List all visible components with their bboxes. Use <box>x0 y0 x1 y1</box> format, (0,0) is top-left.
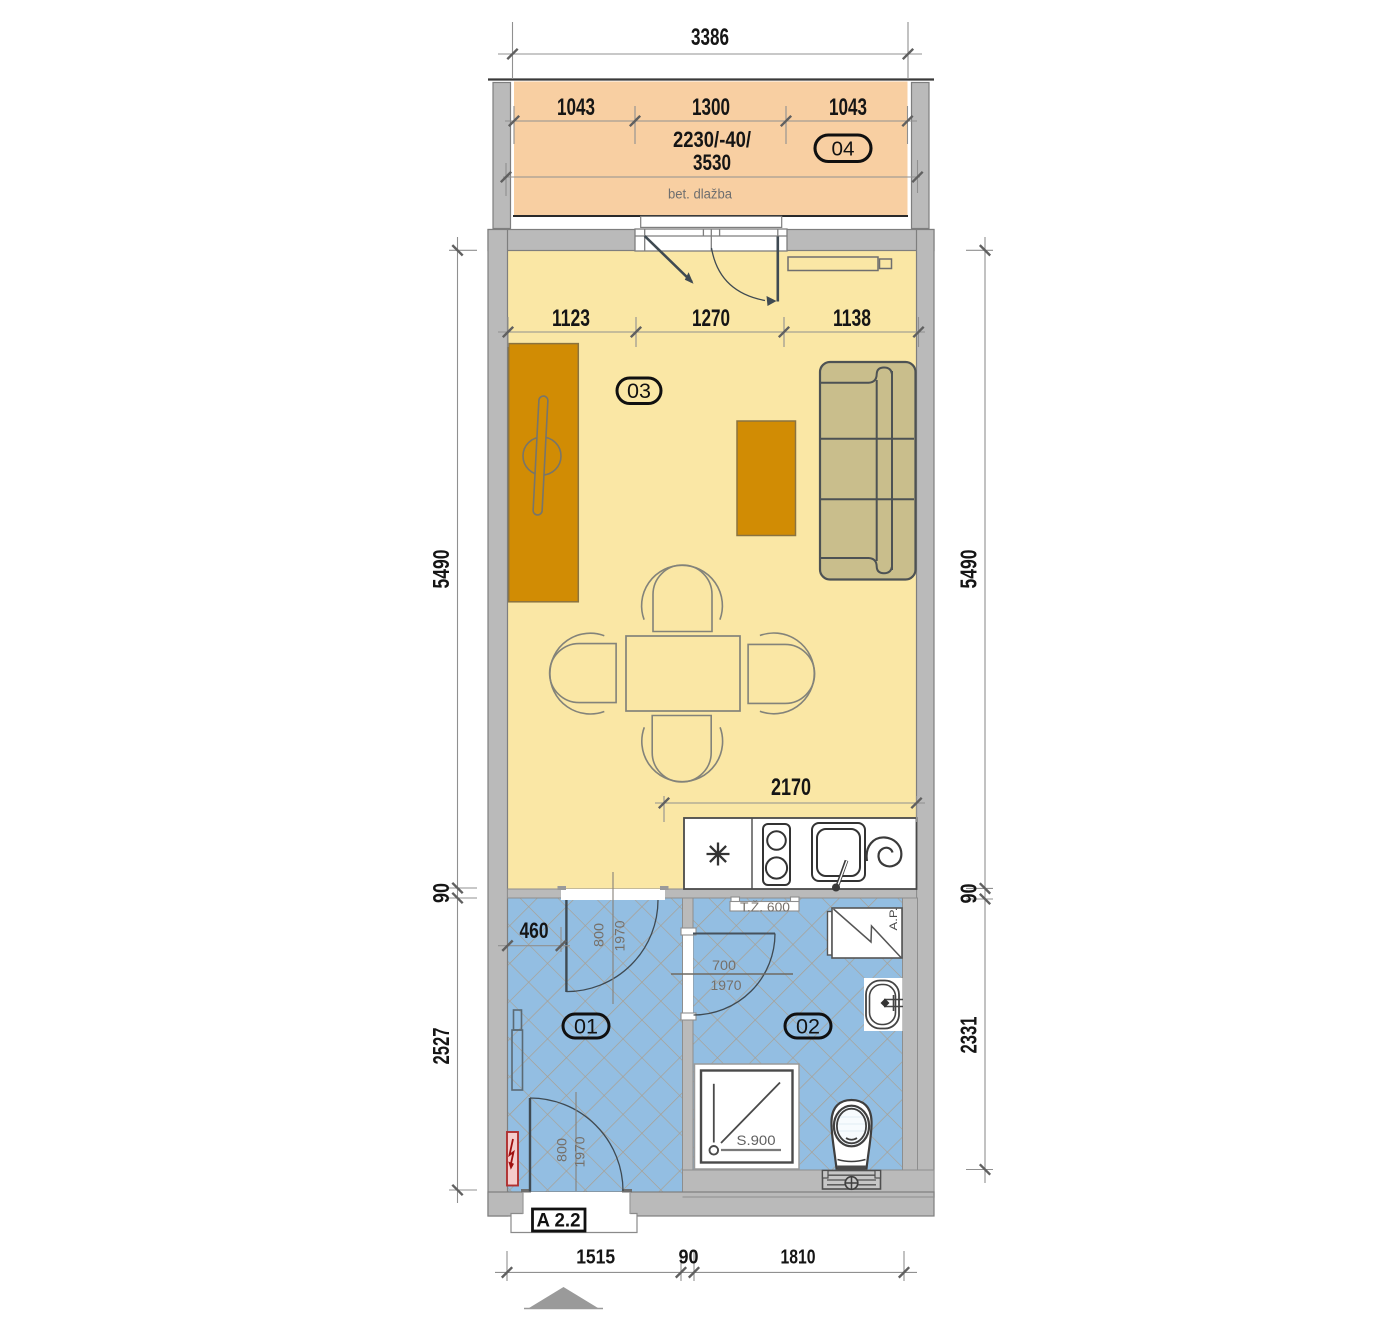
svg-text:1970: 1970 <box>572 1136 588 1167</box>
svg-text:800: 800 <box>591 923 607 947</box>
svg-text:90: 90 <box>428 883 454 903</box>
svg-text:A.P.: A.P. <box>888 908 900 931</box>
svg-text:S.900: S.900 <box>737 1132 776 1148</box>
svg-text:1123: 1123 <box>552 305 590 332</box>
svg-text:1970: 1970 <box>711 977 742 993</box>
svg-text:2331: 2331 <box>956 1016 982 1053</box>
svg-text:2527: 2527 <box>428 1028 454 1065</box>
svg-text:01: 01 <box>574 1016 598 1039</box>
svg-text:03: 03 <box>627 380 651 403</box>
svg-text:3530: 3530 <box>693 150 731 175</box>
svg-text:02: 02 <box>796 1016 820 1039</box>
svg-text:1970: 1970 <box>612 920 628 951</box>
svg-text:3386: 3386 <box>691 24 729 51</box>
svg-text:700: 700 <box>712 957 736 973</box>
svg-text:2170: 2170 <box>771 774 811 801</box>
svg-text:1043: 1043 <box>829 94 867 121</box>
svg-text:800: 800 <box>554 1138 570 1162</box>
svg-text:460: 460 <box>520 918 549 943</box>
svg-text:2230/-40/: 2230/-40/ <box>673 127 751 152</box>
svg-text:T.Ž. 600: T.Ž. 600 <box>740 900 790 915</box>
svg-text:90: 90 <box>956 884 982 904</box>
svg-text:90: 90 <box>679 1247 699 1269</box>
svg-text:1043: 1043 <box>557 94 595 121</box>
svg-text:1138: 1138 <box>833 305 871 332</box>
svg-text:1810: 1810 <box>781 1247 816 1269</box>
svg-text:1515: 1515 <box>576 1247 615 1269</box>
svg-text:5490: 5490 <box>428 550 454 589</box>
svg-text:1270: 1270 <box>692 305 730 332</box>
svg-text:5490: 5490 <box>956 550 982 589</box>
svg-text:A 2.2: A 2.2 <box>537 1211 581 1232</box>
svg-text:04: 04 <box>832 139 855 161</box>
svg-text:1300: 1300 <box>692 94 730 121</box>
svg-text:bet. dlažba: bet. dlažba <box>668 187 732 202</box>
